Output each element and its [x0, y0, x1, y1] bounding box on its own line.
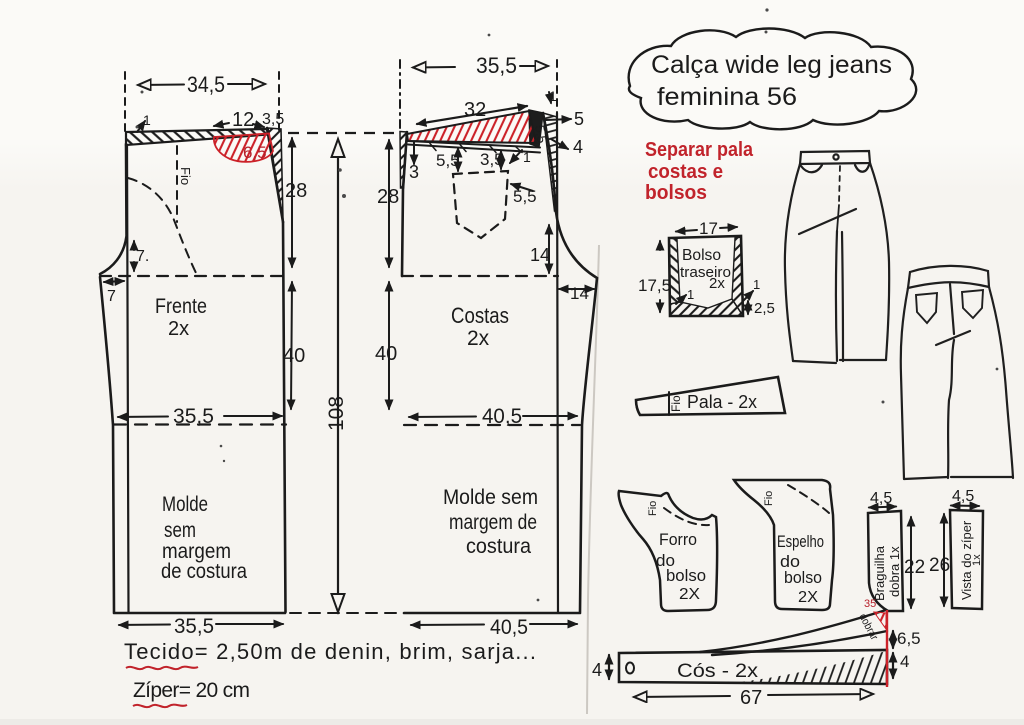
- svg-text:12: 12: [232, 109, 254, 131]
- svg-text:2x: 2x: [168, 318, 189, 340]
- svg-text:3: 3: [409, 162, 419, 182]
- svg-text:Zíper= 20 cm: Zíper= 20 cm: [133, 679, 250, 702]
- svg-text:40: 40: [375, 343, 397, 365]
- svg-text:7: 7: [107, 288, 116, 305]
- svg-text:costas e: costas e: [648, 161, 723, 183]
- svg-text:26: 26: [929, 555, 950, 576]
- svg-text:4,5: 4,5: [952, 488, 974, 505]
- svg-text:2x: 2x: [467, 327, 490, 350]
- svg-text:35,5: 35,5: [174, 615, 214, 638]
- svg-text:2X: 2X: [679, 586, 700, 603]
- svg-text:28: 28: [377, 186, 399, 208]
- svg-text:Molde: Molde: [162, 493, 208, 516]
- svg-text:17,5: 17,5: [638, 276, 671, 295]
- svg-text:feminina 56: feminina 56: [657, 83, 797, 111]
- svg-text:sem: sem: [164, 519, 196, 542]
- svg-text:6,5: 6,5: [243, 143, 267, 162]
- svg-text:Bolso: Bolso: [682, 247, 721, 264]
- svg-text:35: 35: [864, 598, 876, 610]
- svg-text:34,5: 34,5: [187, 72, 225, 97]
- svg-text:4: 4: [573, 137, 583, 157]
- svg-text:Fio: Fio: [763, 491, 775, 506]
- svg-text:17: 17: [699, 219, 718, 238]
- svg-text:Molde sem: Molde sem: [443, 486, 538, 509]
- svg-text:Tecido= 2,50m de denin, bri: Tecido= 2,50m de denin, brim, sarja...: [124, 639, 536, 664]
- svg-text:2x: 2x: [709, 275, 725, 292]
- svg-text:5,5: 5,5: [513, 187, 537, 206]
- svg-text:4: 4: [900, 652, 909, 671]
- svg-text:108: 108: [325, 396, 348, 431]
- svg-text:1: 1: [549, 88, 557, 104]
- svg-text:5: 5: [574, 109, 584, 129]
- svg-text:3,5: 3,5: [480, 150, 504, 169]
- svg-text:2,5: 2,5: [754, 300, 775, 317]
- svg-text:32: 32: [464, 99, 486, 121]
- svg-text:Frente: Frente: [155, 295, 207, 318]
- svg-text:5,5: 5,5: [532, 124, 550, 144]
- svg-text:bolso: bolso: [784, 568, 822, 587]
- svg-text:67: 67: [740, 687, 762, 709]
- svg-text:22: 22: [904, 557, 925, 578]
- svg-text:de costura: de costura: [161, 560, 247, 583]
- svg-text:14: 14: [530, 245, 550, 265]
- svg-text:bolsos: bolsos: [645, 182, 707, 204]
- svg-text:4: 4: [592, 660, 602, 680]
- svg-text:3,5: 3,5: [262, 111, 284, 128]
- svg-text:4,5: 4,5: [870, 490, 892, 507]
- svg-text:Forro: Forro: [659, 530, 697, 549]
- svg-text:Fio: Fio: [178, 167, 193, 185]
- svg-text:7.: 7.: [136, 248, 149, 265]
- svg-text:costura: costura: [466, 535, 531, 558]
- svg-text:Calça wide leg jeans: Calça wide leg jeans: [651, 51, 892, 79]
- svg-text:40: 40: [283, 345, 305, 367]
- svg-text:1: 1: [753, 277, 760, 292]
- svg-text:Pala - 2x: Pala - 2x: [687, 392, 757, 412]
- svg-text:1: 1: [687, 287, 694, 302]
- svg-text:1x: 1x: [971, 554, 983, 566]
- svg-text:28: 28: [285, 180, 307, 202]
- svg-text:35,5: 35,5: [173, 405, 214, 428]
- svg-text:margem de: margem de: [449, 511, 537, 534]
- svg-text:1: 1: [143, 112, 151, 128]
- svg-text:35,5: 35,5: [476, 53, 517, 78]
- svg-text:dobra 1x: dobra 1x: [887, 546, 902, 597]
- svg-text:40,5: 40,5: [482, 405, 522, 428]
- svg-text:bolso: bolso: [666, 566, 706, 585]
- svg-text:Espelho: Espelho: [777, 532, 824, 551]
- svg-text:Costas: Costas: [451, 303, 509, 328]
- svg-text:6,5: 6,5: [897, 629, 921, 648]
- svg-text:1: 1: [523, 149, 531, 165]
- svg-text:Separar pala: Separar pala: [645, 139, 754, 161]
- svg-text:Fio: Fio: [647, 501, 659, 516]
- svg-text:40,5: 40,5: [490, 616, 528, 639]
- svg-text:2X: 2X: [798, 589, 818, 606]
- svg-text:5,5: 5,5: [436, 151, 460, 170]
- svg-text:Cós - 2x: Cós - 2x: [677, 661, 759, 682]
- svg-text:Fio: Fio: [669, 395, 683, 412]
- svg-text:14: 14: [570, 284, 589, 303]
- svg-text:Braguilha: Braguilha: [872, 545, 887, 601]
